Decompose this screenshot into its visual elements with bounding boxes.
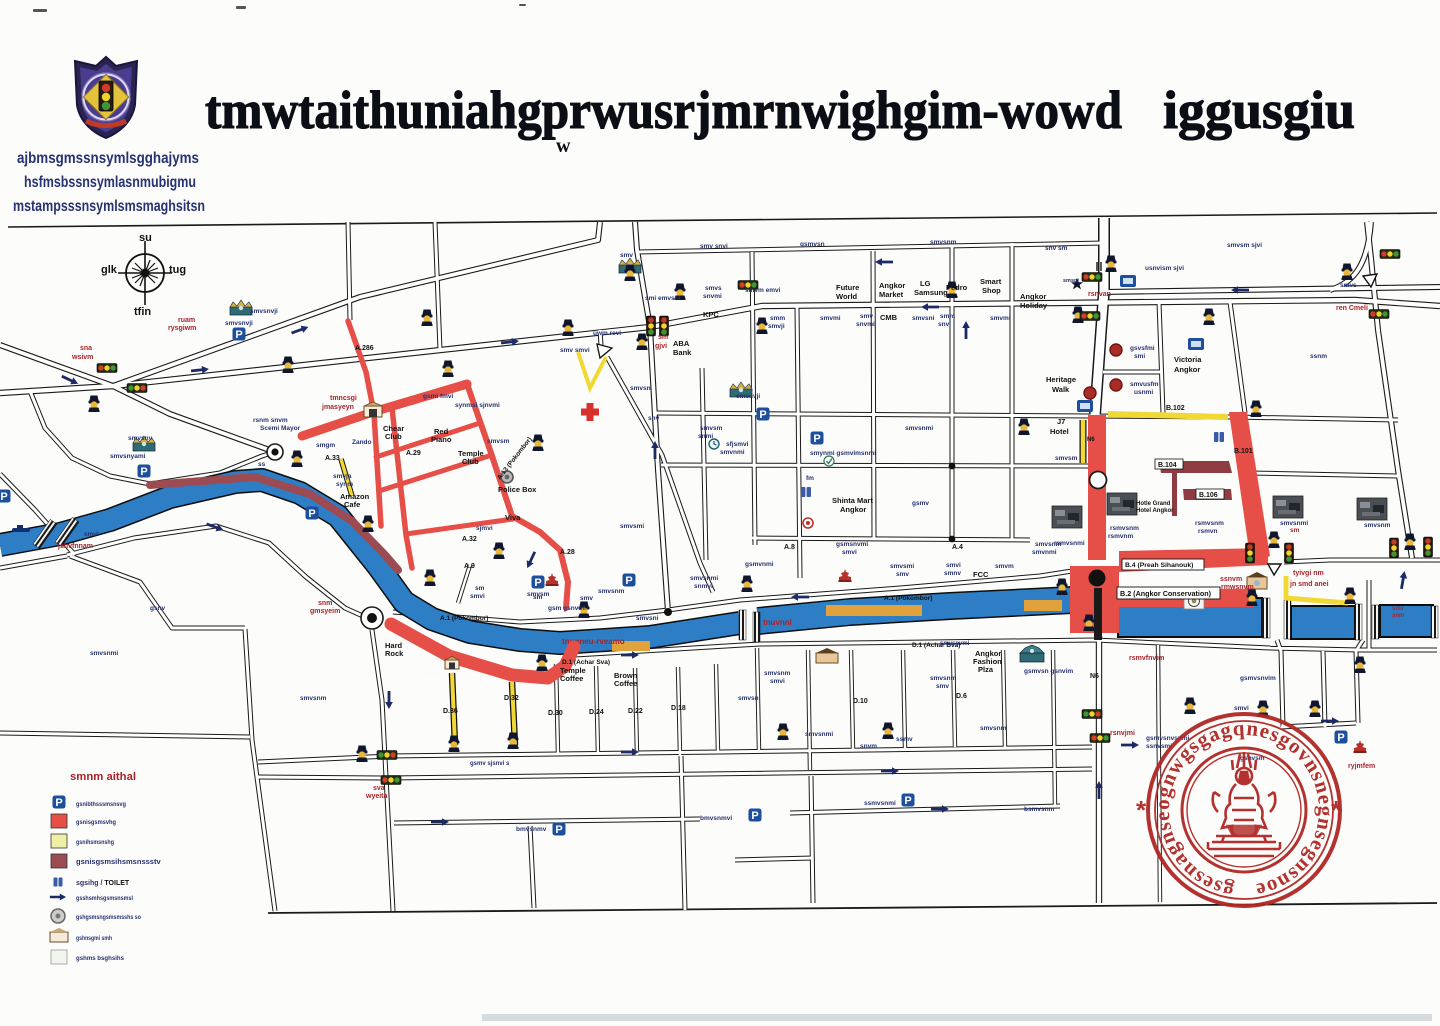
- svg-text:sm: sm: [658, 334, 668, 341]
- svg-text:usnvism sjvi: usnvism sjvi: [1145, 265, 1184, 272]
- svg-text:smvi: smvi: [770, 678, 785, 685]
- svg-text:smm: smm: [770, 315, 785, 322]
- svg-text:Hotle Grand: Hotle Grand: [1136, 501, 1171, 507]
- svg-text:snm: snm: [1392, 613, 1404, 619]
- svg-text:smvi: smvi: [842, 549, 857, 556]
- svg-text:B.104: B.104: [1158, 462, 1177, 469]
- svg-text:D.30: D.30: [548, 710, 563, 717]
- svg-text:ss: ss: [258, 461, 266, 468]
- svg-text:smvsm: smvsm: [1055, 455, 1078, 462]
- svg-text:Piano: Piano: [431, 435, 452, 444]
- svg-text:*: *: [1136, 795, 1147, 825]
- svg-text:gsnibthsssmsnsvg: gsnibthsssmsnsvg: [76, 801, 126, 808]
- svg-text:rsmvsnm: rsmvsnm: [1195, 520, 1224, 527]
- svg-text:gsmv sjsnvi s: gsmv sjsnvi s: [470, 761, 510, 767]
- svg-text:rysgiwm: rysgiwm: [168, 325, 196, 332]
- svg-text:smvm emvi: smvm emvi: [745, 287, 781, 294]
- svg-text:w: w: [556, 135, 571, 157]
- svg-text:tmwtaithuniahgprwusrjmrnwighgi: tmwtaithuniahgprwusrjmrnwighgim-wowd: [205, 80, 1122, 140]
- svg-text:smvji: smvji: [768, 323, 785, 330]
- svg-text:D.24: D.24: [589, 709, 604, 716]
- svg-text:mstampsssnsymlsmsmaghsitsn: mstampsssnsymlsmsmaghsitsn: [13, 198, 205, 215]
- svg-text:smvsn: smvsn: [738, 695, 759, 702]
- svg-text:Shinta Mart: Shinta Mart: [832, 496, 873, 505]
- svg-text:smvsnm: smvsnm: [764, 670, 791, 677]
- svg-text:Police Box: Police Box: [498, 485, 537, 494]
- svg-text:bmvsnmv: bmvsnmv: [516, 826, 547, 833]
- svg-text:smvsnm: smvsnm: [930, 675, 957, 682]
- svg-text:smvsnm: smvsnm: [980, 725, 1007, 732]
- svg-text:Angkor: Angkor: [840, 505, 866, 514]
- svg-text:Pedro: Pedro: [946, 283, 968, 292]
- svg-text:B.102: B.102: [1166, 405, 1185, 412]
- svg-text:Heritage: Heritage: [1046, 375, 1076, 384]
- svg-text:snvi: snvi: [938, 321, 951, 328]
- svg-text:A.286: A.286: [355, 345, 374, 352]
- svg-text:smv smvi: smv smvi: [560, 347, 590, 354]
- svg-text:usnmi: usnmi: [1134, 389, 1153, 396]
- svg-text:snvm: snvm: [860, 743, 877, 750]
- svg-text:gsnisgsmsvhg: gsnisgsmsvhg: [76, 819, 116, 826]
- svg-text:Holiday: Holiday: [1020, 301, 1048, 310]
- svg-text:smvmi: smvmi: [990, 315, 1011, 322]
- svg-text:smvsm sjvi: smvsm sjvi: [1227, 242, 1262, 249]
- svg-text:snm: snm: [318, 600, 332, 607]
- svg-text:smvsni: smvsni: [912, 315, 935, 322]
- svg-text:smvsnm: smvsnm: [300, 695, 327, 702]
- svg-text:smvs: smvs: [1340, 282, 1357, 289]
- svg-text:ryjmfem: ryjmfem: [1348, 763, 1375, 770]
- svg-text:FCC: FCC: [973, 570, 989, 579]
- svg-text:World: World: [836, 292, 858, 301]
- svg-text:A.8: A.8: [784, 544, 795, 551]
- svg-text:B.106: B.106: [1199, 492, 1218, 499]
- svg-text:bsmvsnm: bsmvsnm: [1024, 806, 1055, 813]
- svg-text:smvnmi: smvnmi: [1032, 549, 1057, 556]
- svg-text:snv: snv: [648, 415, 660, 422]
- svg-text:smv: smv: [860, 313, 873, 320]
- svg-text:gsmvsn gsnvim: gsmvsn gsnvim: [1024, 668, 1073, 675]
- svg-text:gshgsmsngsmsmsshs so: gshgsmsngsmsmsshs so: [76, 914, 141, 921]
- svg-text:hsfmsbssnsymlasnmubigmu: hsfmsbssnsymlasnmubigmu: [24, 174, 196, 191]
- svg-text:Walk: Walk: [1052, 385, 1070, 394]
- svg-text:Victoria: Victoria: [1174, 355, 1202, 364]
- svg-text:Hotel: Hotel: [1050, 427, 1069, 436]
- svg-text:smvsnvmi: smvsnvmi: [940, 641, 970, 647]
- svg-text:ssnm: ssnm: [1310, 353, 1327, 360]
- svg-text:tug: tug: [169, 264, 186, 276]
- svg-text:smynmi gsmvimsnmi: smynmi gsmvimsnmi: [810, 450, 876, 457]
- svg-text:rmwsnvm: rmwsnvm: [1221, 584, 1254, 591]
- svg-text:smv: smv: [896, 571, 909, 578]
- svg-text:smvs: smvs: [705, 285, 722, 292]
- svg-text:smvsm: smvsm: [487, 438, 510, 445]
- svg-text:gsnihsmsnshg: gsnihsmsnshg: [76, 839, 114, 846]
- svg-text:gjvi: gjvi: [655, 343, 667, 350]
- svg-text:A.32: A.32: [462, 536, 477, 543]
- svg-text:Plza: Plza: [978, 665, 994, 674]
- svg-text:emsnvji: emsnvji: [736, 393, 760, 400]
- svg-text:smvi: smvi: [946, 562, 961, 569]
- svg-text:ssmvsnmi: ssmvsnmi: [864, 800, 896, 807]
- svg-text:Angkor: Angkor: [1020, 292, 1046, 301]
- svg-text:rsnvan: rsnvan: [1088, 291, 1111, 298]
- svg-text:Club: Club: [462, 457, 479, 466]
- svg-text:*: *: [1331, 795, 1342, 825]
- svg-text:Market: Market: [879, 290, 904, 299]
- svg-text:smv: smv: [580, 595, 593, 602]
- svg-text:rsmvsnm: rsmvsnm: [1110, 525, 1139, 532]
- svg-text:smvsnmi: smvsnmi: [1280, 520, 1308, 527]
- svg-text:fm: fm: [806, 475, 814, 482]
- svg-text:N6: N6: [1090, 673, 1099, 680]
- svg-text:rsnm snvm: rsnm snvm: [253, 417, 288, 424]
- svg-text:smvi: smvi: [84, 531, 99, 538]
- svg-text:Shop: Shop: [982, 286, 1001, 295]
- svg-text:smvsnm: smvsnm: [1364, 522, 1391, 529]
- svg-text:smvsnmi: smvsnmi: [690, 575, 718, 582]
- svg-text:smi emvsni: smi emvsni: [645, 295, 681, 302]
- svg-text:Bank: Bank: [673, 348, 692, 357]
- svg-text:D.22: D.22: [628, 708, 643, 715]
- svg-text:D.6: D.6: [956, 693, 967, 700]
- svg-text:smv: smv: [1392, 606, 1405, 612]
- svg-text:snvmi: snvmi: [856, 321, 875, 328]
- svg-text:smvsnmi: smvsnmi: [905, 425, 933, 432]
- svg-text:ssmv: ssmv: [896, 736, 913, 743]
- svg-text:A.29: A.29: [406, 450, 421, 457]
- svg-text:ren Cmeli: ren Cmeli: [1336, 305, 1368, 312]
- svg-text:smsni: smsni: [1063, 278, 1079, 284]
- svg-text:Zando: Zando: [352, 439, 372, 446]
- svg-text:sjmvi: sjmvi: [476, 525, 493, 532]
- svg-text:gsnv: gsnv: [150, 605, 166, 612]
- svg-text:smvsm: smvsm: [700, 425, 723, 432]
- svg-text:smvsn: smvsn: [630, 385, 651, 392]
- svg-text:sm: sm: [1290, 527, 1300, 534]
- svg-text:smvsnm: smvsnm: [598, 588, 625, 595]
- svg-text:smvsnmi: smvsnmi: [805, 731, 833, 738]
- svg-text:smvm: smvm: [995, 563, 1014, 570]
- svg-text:smvsmi: smvsmi: [620, 523, 644, 530]
- svg-text:Angkor: Angkor: [1174, 365, 1200, 374]
- svg-text:gshnsgmi smh: gshnsgmi smh: [76, 935, 112, 942]
- svg-text:tmncsgi: tmncsgi: [330, 395, 357, 402]
- svg-text:Coffee: Coffee: [560, 674, 583, 683]
- svg-text:smvsnvji: smvsnvji: [250, 308, 278, 315]
- svg-text:rsmvn: rsmvn: [1198, 528, 1218, 535]
- svg-text:D.18: D.18: [671, 705, 686, 712]
- svg-text:gsmvnmi: gsmvnmi: [745, 561, 774, 568]
- svg-text:rsmvsnmi: rsmvsnmi: [1054, 540, 1085, 547]
- svg-text:B.101: B.101: [1234, 448, 1253, 455]
- svg-text:Coffee: Coffee: [614, 679, 637, 688]
- svg-text:smv: smv: [936, 683, 949, 690]
- svg-text:rsmvfnvim: rsmvfnvim: [1129, 655, 1164, 662]
- svg-text:smvsnv: smvsnv: [128, 435, 153, 442]
- svg-text:gsnisgsmsihsmsnssstv: gsnisgsmsihsmsnssstv: [76, 857, 161, 866]
- svg-text:jn smd anei: jn smd anei: [1289, 581, 1329, 588]
- svg-text:Rock: Rock: [385, 649, 404, 658]
- svg-text:gsmv: gsmv: [912, 500, 929, 507]
- svg-text:B.2 (Angkor Conservation): B.2 (Angkor Conservation): [1120, 589, 1212, 598]
- svg-text:D.10: D.10: [853, 698, 868, 705]
- svg-text:smvsnm: smvsnm: [930, 239, 957, 246]
- svg-text:smvi: smvi: [1234, 705, 1249, 712]
- svg-text:Angkor: Angkor: [879, 281, 905, 290]
- svg-text:jsnvfnnam: jsnvfnnam: [57, 543, 93, 550]
- svg-text:Scemi Mayor: Scemi Mayor: [260, 425, 301, 432]
- svg-text:wsn: wsn: [426, 676, 439, 682]
- svg-text:bmvsnmvi: bmvsnmvi: [700, 815, 732, 822]
- svg-text:A.9: A.9: [464, 563, 475, 570]
- svg-text:tyivgi nm: tyivgi nm: [1293, 570, 1324, 577]
- svg-text:rsnvjmi: rsnvjmi: [1110, 730, 1135, 737]
- svg-text:Cafe: Cafe: [344, 500, 360, 509]
- svg-text:wyeita: wyeita: [365, 793, 388, 800]
- svg-text:CMB: CMB: [880, 313, 898, 322]
- svg-text:sgsihg / TOILET: sgsihg / TOILET: [76, 880, 130, 887]
- svg-text:smnm aithal: smnm aithal: [70, 771, 136, 783]
- svg-text:smvja: smvja: [333, 473, 352, 480]
- svg-text:snmvi: snmvi: [694, 583, 713, 590]
- svg-text:A.28: A.28: [560, 549, 575, 556]
- svg-text:LG: LG: [920, 279, 931, 288]
- svg-text:gsmsnvmi: gsmsnvmi: [836, 541, 868, 548]
- svg-text:smvsmi: smvsmi: [890, 563, 914, 570]
- svg-text:sm: sm: [533, 594, 543, 601]
- svg-text:smi: smi: [1134, 353, 1145, 360]
- svg-text:synmsi sjnvmi: synmsi sjnvmi: [455, 402, 500, 409]
- svg-text:gsm gsnvmi: gsm gsnvmi: [548, 605, 586, 612]
- svg-text:smm: smm: [940, 313, 955, 320]
- svg-text:Samsung: Samsung: [914, 288, 948, 297]
- svg-text:smv: smv: [620, 252, 633, 259]
- svg-text:ajbmsgmssnsymlsgghajyms: ajbmsgmssnsymlsgghajyms: [17, 150, 199, 167]
- svg-text:sfjsmvi: sfjsmvi: [726, 441, 749, 448]
- svg-text:sna: sna: [80, 345, 92, 352]
- svg-text:smvusfm: smvusfm: [1130, 381, 1159, 388]
- svg-text:tnuvnnl: tnuvnnl: [763, 618, 792, 627]
- svg-text:Viva: Viva: [505, 513, 521, 522]
- svg-text:wsivm: wsivm: [71, 354, 93, 361]
- svg-text:su: su: [139, 232, 152, 244]
- svg-text:sm: sm: [475, 585, 485, 592]
- svg-text:KPC: KPC: [703, 310, 719, 319]
- svg-text:N6: N6: [1087, 437, 1095, 443]
- svg-text:D.1 (Achar Sva): D.1 (Achar Sva): [562, 659, 610, 666]
- svg-text:iggusgiu: iggusgiu: [1163, 80, 1355, 140]
- svg-text:smvmi: smvmi: [820, 315, 841, 322]
- svg-text:smvsnvji: smvsnvji: [225, 320, 253, 327]
- svg-text:A.1 (Pokombor): A.1 (Pokombor): [440, 615, 488, 622]
- svg-text:A.1 (Pokombor): A.1 (Pokombor): [884, 595, 932, 602]
- svg-text:gsshsmhsgsmsnsmsl: gsshsmhsgsmsnsmsl: [76, 895, 133, 902]
- svg-text:gsvsfmi: gsvsfmi: [1130, 345, 1155, 352]
- svg-text:snvmi: snvmi: [703, 293, 722, 300]
- svg-text:gsmvsnvim: gsmvsnvim: [1240, 675, 1276, 682]
- svg-text:A.4: A.4: [952, 544, 963, 551]
- svg-text:Smart: Smart: [980, 277, 1002, 286]
- svg-text:sva: sva: [373, 785, 385, 792]
- svg-text:Future: Future: [836, 283, 859, 292]
- svg-text:smvsni: smvsni: [636, 615, 659, 622]
- svg-text:snmi: snmi: [698, 433, 713, 440]
- svg-text:jmasyeyn: jmasyeyn: [321, 404, 354, 411]
- svg-text:A.33: A.33: [325, 455, 340, 462]
- svg-text:smvsnyami: smvsnyami: [110, 453, 146, 460]
- svg-text:D.32: D.32: [504, 695, 519, 702]
- svg-text:ssnvm: ssnvm: [1220, 576, 1242, 583]
- svg-text:smnv: smnv: [944, 570, 961, 577]
- svg-text:gsmvsn: gsmvsn: [800, 241, 825, 248]
- svg-text:gmsyeim: gmsyeim: [310, 608, 340, 615]
- svg-text:smvsnmi: smvsnmi: [90, 650, 118, 657]
- svg-text:gshms bsghsihs: gshms bsghsihs: [76, 955, 124, 962]
- svg-text:uwm revi: uwm revi: [593, 330, 621, 337]
- svg-text:Hotel Angkor: Hotel Angkor: [1136, 508, 1174, 514]
- svg-text:tfin: tfin: [134, 306, 151, 318]
- svg-text:glk: glk: [101, 264, 118, 276]
- svg-text:smgm: smgm: [316, 442, 335, 449]
- svg-text:Club: Club: [385, 432, 402, 441]
- svg-text:gsmi fmvi: gsmi fmvi: [423, 393, 454, 400]
- svg-text:smvnmi: smvnmi: [720, 449, 745, 456]
- svg-text:smvi: smvi: [470, 593, 485, 600]
- svg-text:smv snvi: smv snvi: [700, 243, 728, 250]
- svg-text:rsmvnm: rsmvnm: [1108, 533, 1134, 540]
- svg-text:D.36: D.36: [443, 708, 458, 715]
- svg-text:snv sm: snv sm: [1045, 245, 1068, 252]
- svg-text:J7: J7: [1057, 417, 1065, 426]
- svg-text:B.4 (Preah Sihanouk): B.4 (Preah Sihanouk): [1125, 562, 1193, 569]
- svg-text:ruam: ruam: [178, 317, 195, 324]
- svg-text:ABA: ABA: [673, 339, 690, 348]
- svg-text:synm: synm: [336, 481, 353, 488]
